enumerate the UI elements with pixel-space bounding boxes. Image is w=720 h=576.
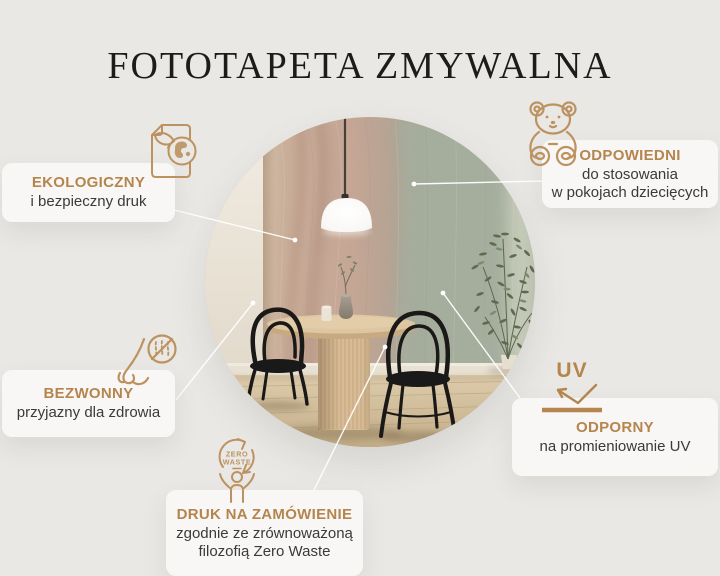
zero-waste-icon: ZERO WASTE [209, 432, 265, 509]
nose-no-smell-icon [111, 334, 179, 395]
feature-text-uv: na promieniowanie UV [540, 438, 691, 456]
teddy-bear-icon [525, 99, 581, 174]
feature-text-eco: i bezpieczny druk [31, 193, 147, 211]
room-photo-circle [205, 117, 535, 447]
photo-vignette [205, 117, 535, 447]
uv-icon-label: UV [538, 360, 606, 381]
feature-heading-eco: EKOLOGICZNY [32, 174, 145, 191]
zero-waste-icon-text-2: WASTE [223, 458, 252, 467]
uv-reflection-icon: UV [538, 360, 606, 419]
document-leaf-globe-icon [147, 122, 199, 189]
feature-text-kids-1: do stosowania [582, 166, 678, 184]
feature-text-zero-waste-1: zgodnie ze zrównoważoną [176, 525, 353, 543]
feature-text-kids-2: w pokojach dziecięcych [552, 184, 709, 202]
page-title: FOTOTAPETA ZMYWALNA [0, 47, 720, 85]
feature-text-odorless: przyjazny dla zdrowia [17, 404, 160, 422]
feature-heading-uv: ODPORNY [576, 419, 654, 436]
room-photo-scene [205, 117, 535, 447]
feature-text-zero-waste-2: filozofią Zero Waste [199, 543, 331, 561]
feature-heading-kids: ODPOWIEDNI [579, 147, 680, 164]
infographic: FOTOTAPETA ZMYWALNA [0, 0, 720, 576]
